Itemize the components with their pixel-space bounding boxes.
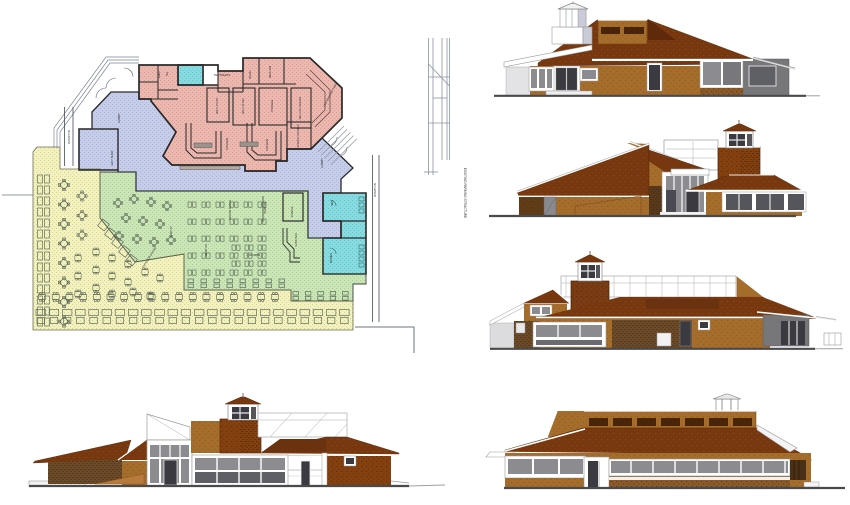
svg-text:WALK-IN FREEZER: WALK-IN FREEZER [299,96,302,119]
svg-text:MEN: MEN [330,200,334,206]
svg-text:STORAGE: STORAGE [270,99,274,112]
svg-text:WALK-IN FRZ: WALK-IN FRZ [216,98,219,114]
svg-text:TRASH: TRASH [248,70,252,79]
svg-text:SERVICE COUNTER: SERVICE COUNTER [297,124,300,147]
svg-text:ELECT: ELECT [159,70,161,78]
svg-text:← NO APPR: ← NO APPR [246,254,261,257]
svg-text:INDOOR DINING: INDOOR DINING [228,200,232,220]
svg-text:RAMP DN: RAMP DN [373,183,377,197]
svg-text:SUSHI BAR: SUSHI BAR [295,233,298,247]
svg-text:EXISTING PARKING STRUCTURE: EXISTING PARKING STRUCTURE [463,168,467,218]
svg-text:RAMP DN: RAMP DN [264,202,267,214]
svg-text:RAMP UP: RAMP UP [170,226,173,238]
svg-text:TEL: TEL [167,71,169,76]
svg-text:MECH RM: MECH RM [268,66,272,78]
svg-text:GIFT SHOP: GIFT SHOP [110,150,114,165]
svg-text:RAMP DN: RAMP DN [205,244,208,256]
svg-text:TEL/TOILETS: TEL/TOILETS [214,73,231,77]
svg-text:WALK-IN REF: WALK-IN REF [242,98,245,114]
svg-text:LOBBY: LOBBY [117,113,121,123]
svg-text:KITCHEN: KITCHEN [265,139,269,151]
svg-text:RAMP DN: RAMP DN [67,130,71,144]
svg-text:WOMEN: WOMEN [329,253,333,263]
svg-text:SERVICE: SERVICE [291,206,294,217]
svg-text:LOBBY: LOBBY [320,158,324,168]
svg-text:KITCHEN: KITCHEN [225,138,229,150]
